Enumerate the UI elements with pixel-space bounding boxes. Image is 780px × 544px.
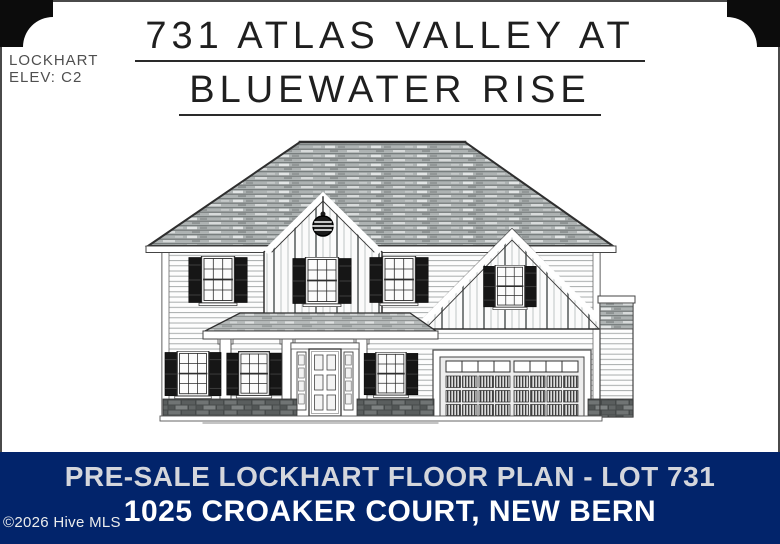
mls-banner: PRE-SALE LOCKHART FLOOR PLAN - LOT 731 1… xyxy=(0,452,780,544)
mls-watermark: ©2026 Hive MLS xyxy=(3,514,121,531)
window-upper-right xyxy=(370,256,428,306)
front-door xyxy=(291,343,359,417)
garage-door xyxy=(433,350,591,418)
house xyxy=(146,142,635,423)
banner-headline: PRE-SALE LOCKHART FLOOR PLAN - LOT 731 xyxy=(0,461,780,493)
title-line-2: BLUEWATER RISE xyxy=(179,68,601,116)
listing-image: LOCKHART ELEV: C2 731 ATLAS VALLEY AT BL… xyxy=(0,0,780,544)
window-lower-left xyxy=(165,351,221,399)
window-lower-right xyxy=(364,352,418,398)
window-garage-gable xyxy=(484,265,537,310)
window-porch xyxy=(227,352,282,398)
foundation-line xyxy=(160,416,602,423)
window-upper-left xyxy=(189,256,247,306)
main-roof xyxy=(146,142,616,253)
window-gable-center xyxy=(293,257,351,307)
title-line-1: 731 ATLAS VALLEY AT xyxy=(135,14,644,62)
sheet-title: 731 ATLAS VALLEY AT BLUEWATER RISE xyxy=(0,14,780,122)
chimney xyxy=(598,296,635,417)
